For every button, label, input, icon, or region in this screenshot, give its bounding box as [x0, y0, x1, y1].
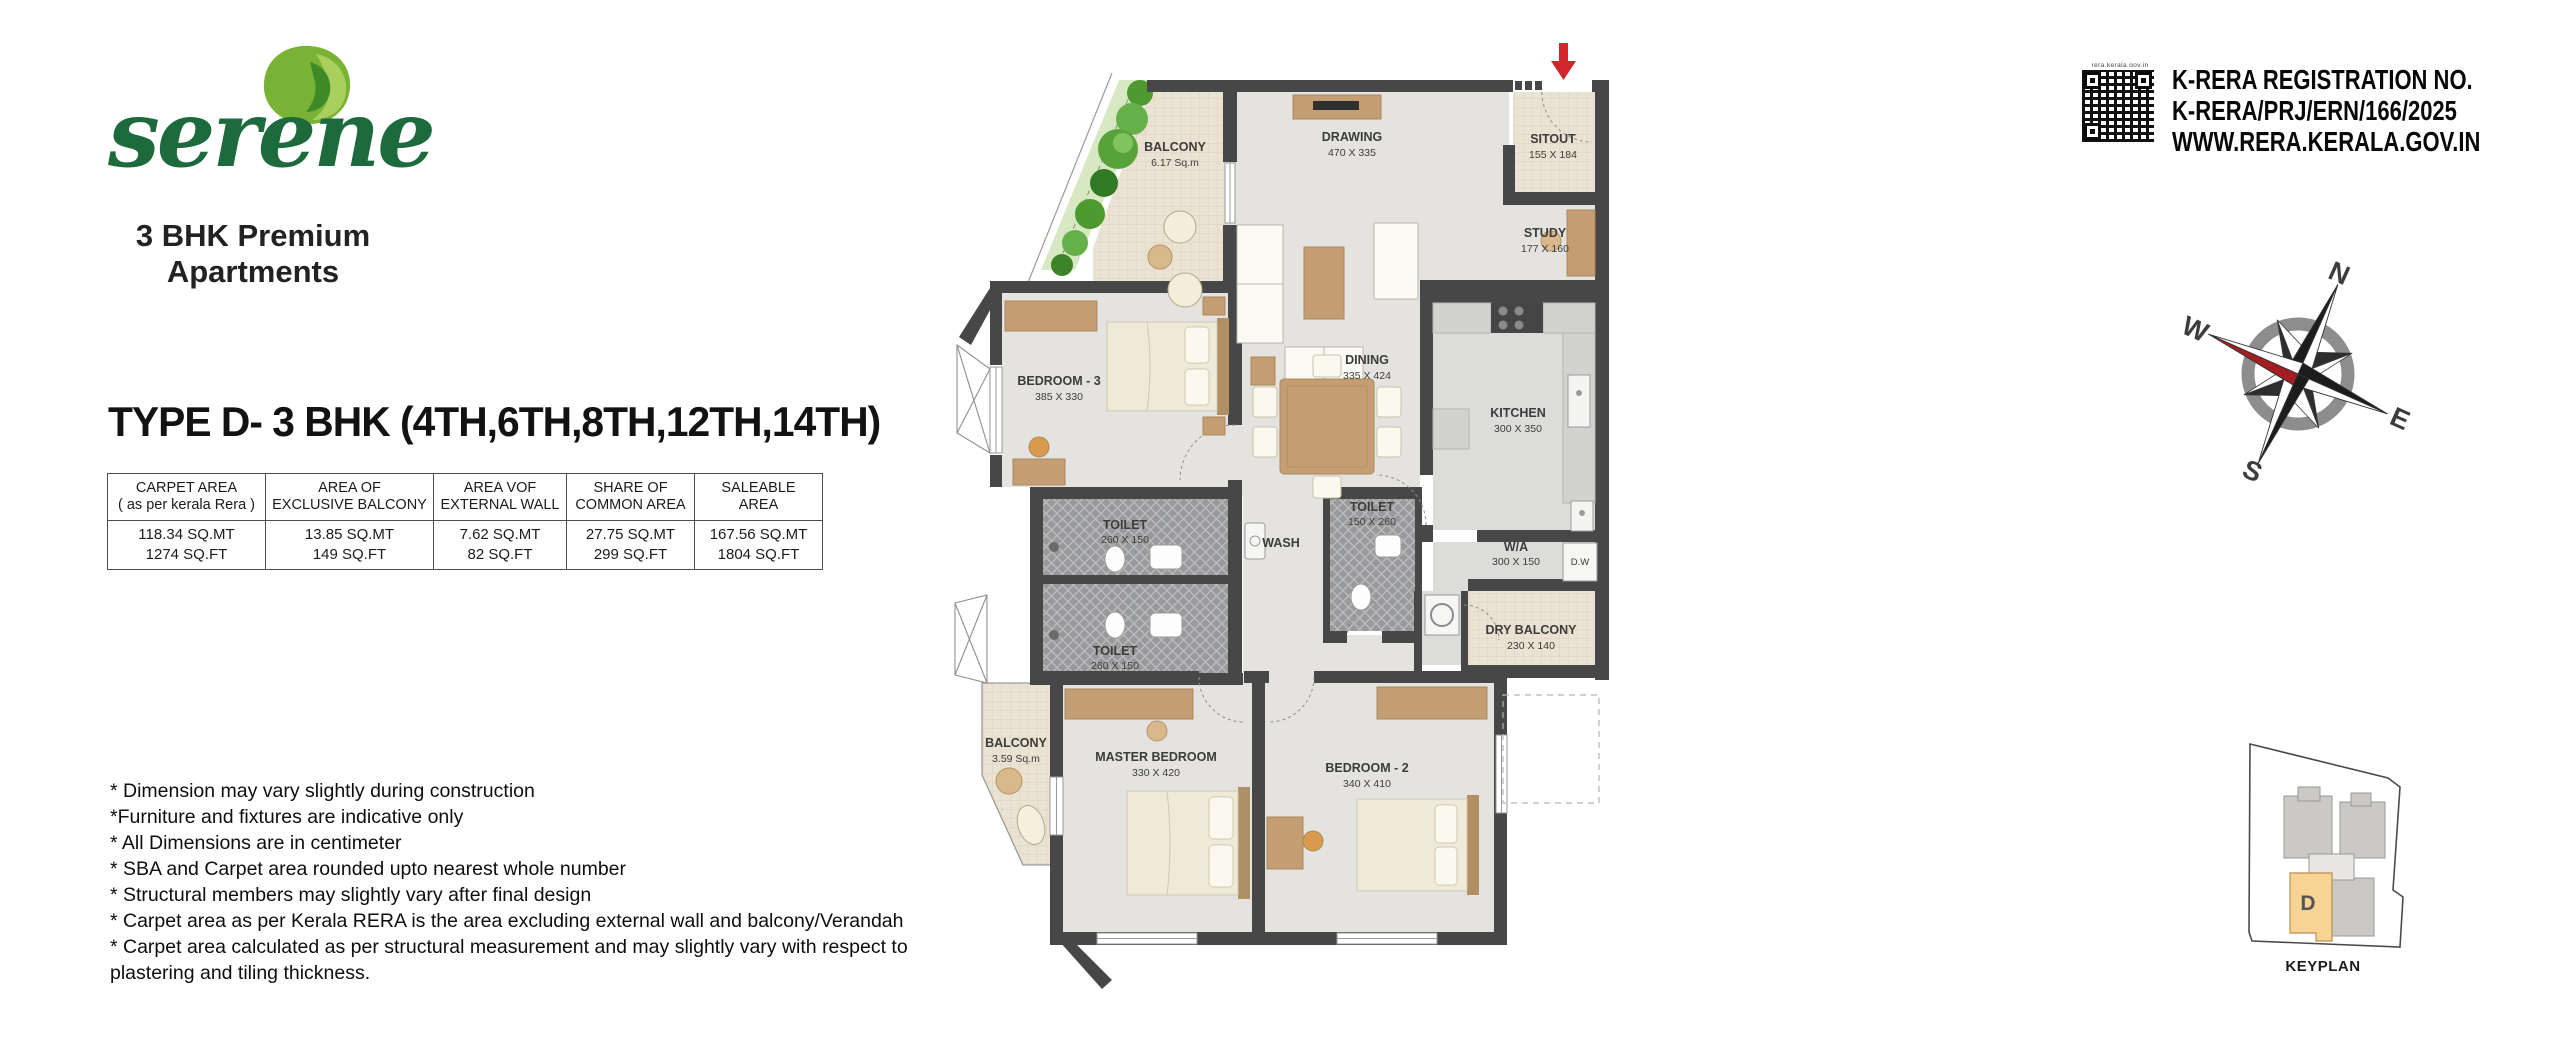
rera-registration: K-RERA REGISTRATION NO. K-RERA/PRJ/ERN/1…	[2172, 64, 2480, 157]
svg-text:260 X 150: 260 X 150	[1101, 534, 1149, 546]
qr-caption: rera.kerala.gov.in	[2082, 62, 2158, 69]
value-carpet: 118.34 SQ.MT1274 SQ.FT	[108, 521, 266, 570]
brand-tagline-line2: Apartments	[118, 254, 388, 290]
col-header-balcony: AREA OFEXCLUSIVE BALCONY	[266, 474, 434, 521]
label-wa: W/A	[1504, 540, 1528, 554]
brand-name: serene	[108, 88, 468, 180]
qr-code-icon	[2082, 70, 2154, 142]
note-3: * All Dimensions are in centimeter	[110, 830, 950, 856]
note-5: * Structural members may slightly vary a…	[110, 882, 950, 908]
label-dw: D.W	[1571, 557, 1590, 568]
disclaimer-notes: * Dimension may vary slightly during con…	[110, 778, 950, 986]
area-table-value-row: 118.34 SQ.MT1274 SQ.FT 13.85 SQ.MT149 SQ…	[108, 521, 823, 570]
svg-text:260 X 150: 260 X 150	[1091, 660, 1139, 672]
compass-west-label: W	[2180, 310, 2213, 348]
label-balcony-top: BALCONY	[1144, 140, 1206, 154]
label-study: STUDY	[1524, 226, 1567, 240]
note-4: * SBA and Carpet area rounded upto neare…	[110, 856, 950, 882]
svg-text:300 X 350: 300 X 350	[1494, 423, 1542, 435]
svg-text:6.17 Sq.m: 6.17 Sq.m	[1151, 157, 1199, 169]
svg-text:335 X 424: 335 X 424	[1343, 370, 1391, 382]
compass-south-label: S	[2238, 454, 2267, 489]
svg-text:155 X 184: 155 X 184	[1529, 149, 1577, 161]
label-bedroom-3: BEDROOM - 3	[1017, 374, 1100, 388]
bay-windows	[955, 345, 990, 683]
svg-text:340 X 410: 340 X 410	[1343, 778, 1391, 790]
rera-line2: K-RERA/PRJ/ERN/166/2025	[2172, 95, 2480, 126]
value-saleable: 167.56 SQ.MT1804 SQ.FT	[695, 521, 823, 570]
floor-plan-brochure-page: serene 3 BHK Premium Apartments TYPE D- …	[0, 0, 2560, 1055]
label-kitchen: KITCHEN	[1490, 406, 1546, 420]
entry-arrow-icon	[1551, 43, 1576, 80]
col-header-common: SHARE OFCOMMON AREA	[567, 474, 695, 521]
compass-east-label: E	[2386, 401, 2415, 436]
value-balcony: 13.85 SQ.MT149 SQ.FT	[266, 521, 434, 570]
brand-tagline: 3 BHK Premium Apartments	[118, 218, 388, 290]
floor-plan-drawing: BALCONY 6.17 Sq.m DRAWING 470 X 335 SITO…	[947, 35, 1662, 1015]
col-header-extwall: AREA VOFEXTERNAL WALL	[434, 474, 567, 521]
keyplan: D	[2228, 728, 2413, 953]
svg-text:3.59 Sq.m: 3.59 Sq.m	[992, 753, 1040, 765]
label-toilet-3: TOILET	[1093, 644, 1138, 658]
qr-block: rera.kerala.gov.in	[2082, 62, 2158, 142]
svg-text:177 X 160: 177 X 160	[1521, 243, 1569, 255]
compass-north-label: N	[2324, 256, 2354, 291]
svg-text:330 X 420: 330 X 420	[1132, 767, 1180, 779]
label-toilet-1: TOILET	[1103, 518, 1148, 532]
col-header-saleable: SALEABLE AREA	[695, 474, 823, 521]
rera-line3: WWW.RERA.KERALA.GOV.IN	[2172, 126, 2480, 157]
area-table: CARPET AREA( as per kerala Rera ) AREA O…	[107, 473, 823, 570]
page-title: TYPE D- 3 BHK (4TH,6TH,8TH,12TH,14TH)	[108, 398, 880, 446]
value-extwall: 7.62 SQ.MT82 SQ.FT	[434, 521, 567, 570]
svg-text:470 X 335: 470 X 335	[1328, 147, 1376, 159]
rera-line1: K-RERA REGISTRATION NO.	[2172, 64, 2480, 95]
open-terrace-dashed	[1503, 695, 1599, 803]
label-drawing: DRAWING	[1322, 130, 1382, 144]
label-master-bedroom: MASTER BEDROOM	[1095, 750, 1217, 764]
svg-text:300 X 150: 300 X 150	[1492, 556, 1540, 568]
keyplan-unit-d-label: D	[2300, 892, 2315, 915]
note-1: * Dimension may vary slightly during con…	[110, 778, 950, 804]
svg-text:230 X 140: 230 X 140	[1507, 640, 1555, 652]
value-common: 27.75 SQ.MT299 SQ.FT	[567, 521, 695, 570]
label-dining: DINING	[1345, 353, 1389, 367]
label-toilet-2: TOILET	[1350, 500, 1395, 514]
label-sitout: SITOUT	[1530, 132, 1576, 146]
svg-text:385 X 330: 385 X 330	[1035, 391, 1083, 403]
svg-text:150 X 260: 150 X 260	[1348, 516, 1396, 528]
note-2: *Furniture and fixtures are indicative o…	[110, 804, 950, 830]
keyplan-caption: KEYPLAN	[2238, 958, 2408, 975]
label-balcony-bottom: BALCONY	[985, 736, 1047, 750]
note-6: * Carpet area as per Kerala RERA is the …	[110, 908, 950, 934]
label-wash: WASH	[1262, 536, 1300, 550]
label-dry-balcony: DRY BALCONY	[1486, 623, 1578, 637]
compass-rose-icon: N E S W	[2180, 246, 2430, 511]
area-table-header-row: CARPET AREA( as per kerala Rera ) AREA O…	[108, 474, 823, 521]
label-bedroom-2: BEDROOM - 2	[1325, 761, 1408, 775]
col-header-carpet: CARPET AREA( as per kerala Rera )	[108, 474, 266, 521]
note-7: * Carpet area calculated as per structur…	[110, 934, 920, 986]
brand-tagline-line1: 3 BHK Premium	[118, 218, 388, 254]
